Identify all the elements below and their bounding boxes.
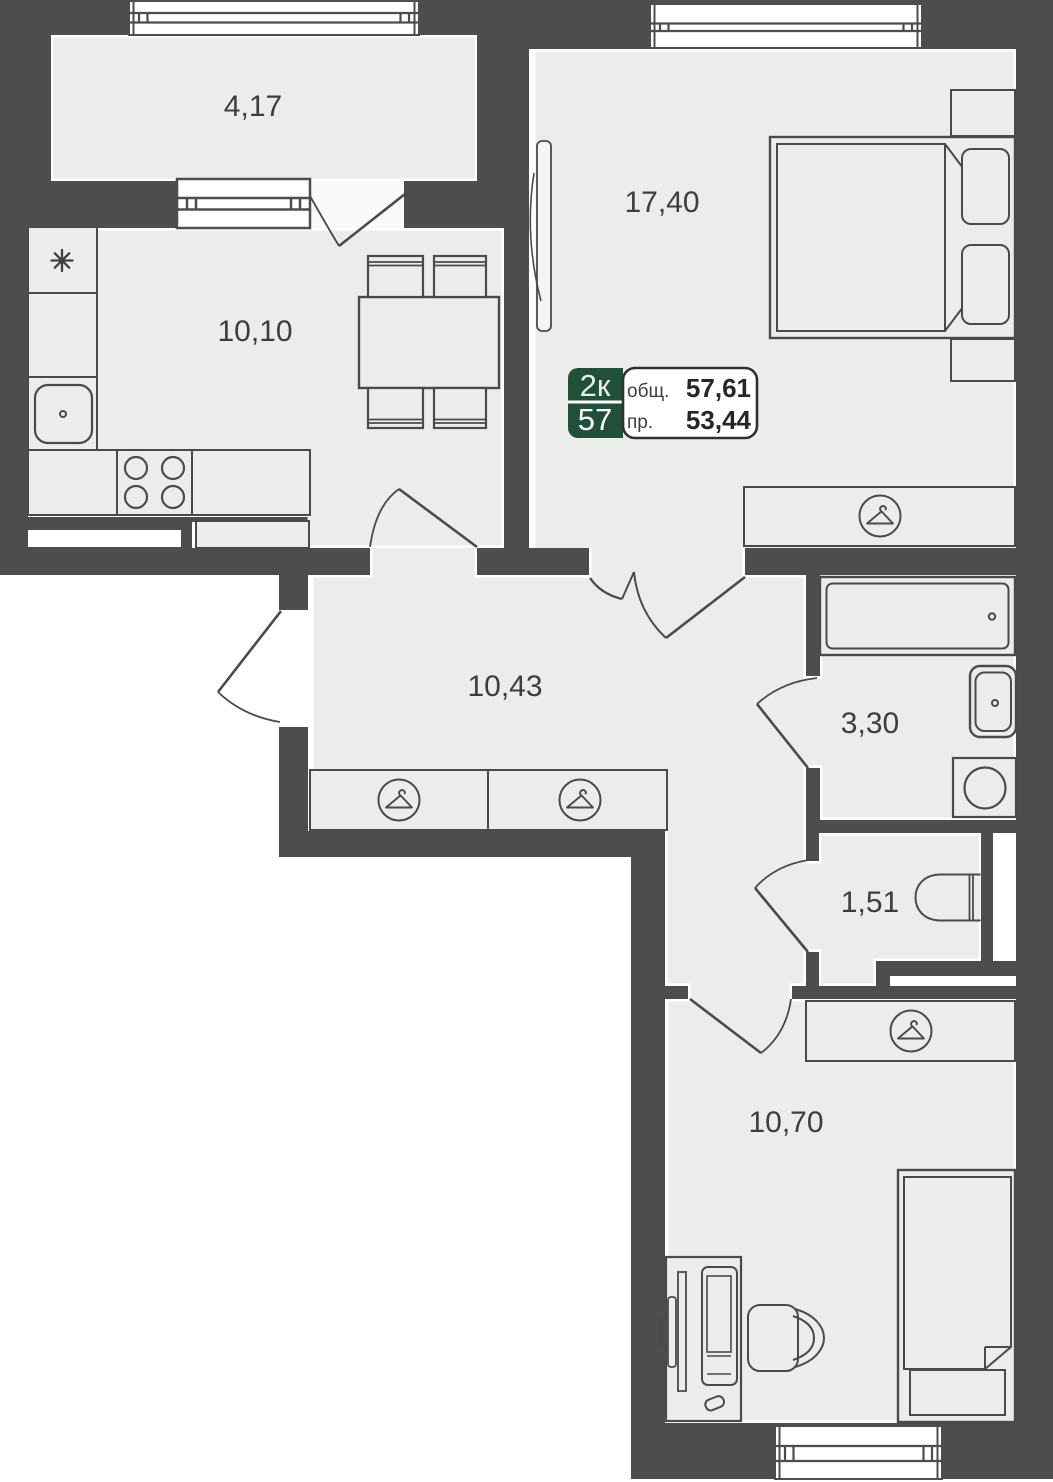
svg-text:57,61: 57,61 <box>686 373 751 403</box>
svg-text:4,17: 4,17 <box>224 90 282 123</box>
svg-text:17,40: 17,40 <box>624 186 699 219</box>
svg-text:10,10: 10,10 <box>217 315 292 348</box>
svg-text:общ.: общ. <box>627 381 669 402</box>
svg-text:57: 57 <box>578 402 612 437</box>
svg-text:1,51: 1,51 <box>841 886 899 919</box>
svg-text:пр.: пр. <box>627 412 653 433</box>
svg-text:2к: 2к <box>580 368 611 403</box>
svg-text:10,43: 10,43 <box>467 670 542 703</box>
svg-text:53,44: 53,44 <box>686 405 752 435</box>
svg-text:3,30: 3,30 <box>841 707 899 740</box>
svg-text:10,70: 10,70 <box>748 1106 823 1139</box>
